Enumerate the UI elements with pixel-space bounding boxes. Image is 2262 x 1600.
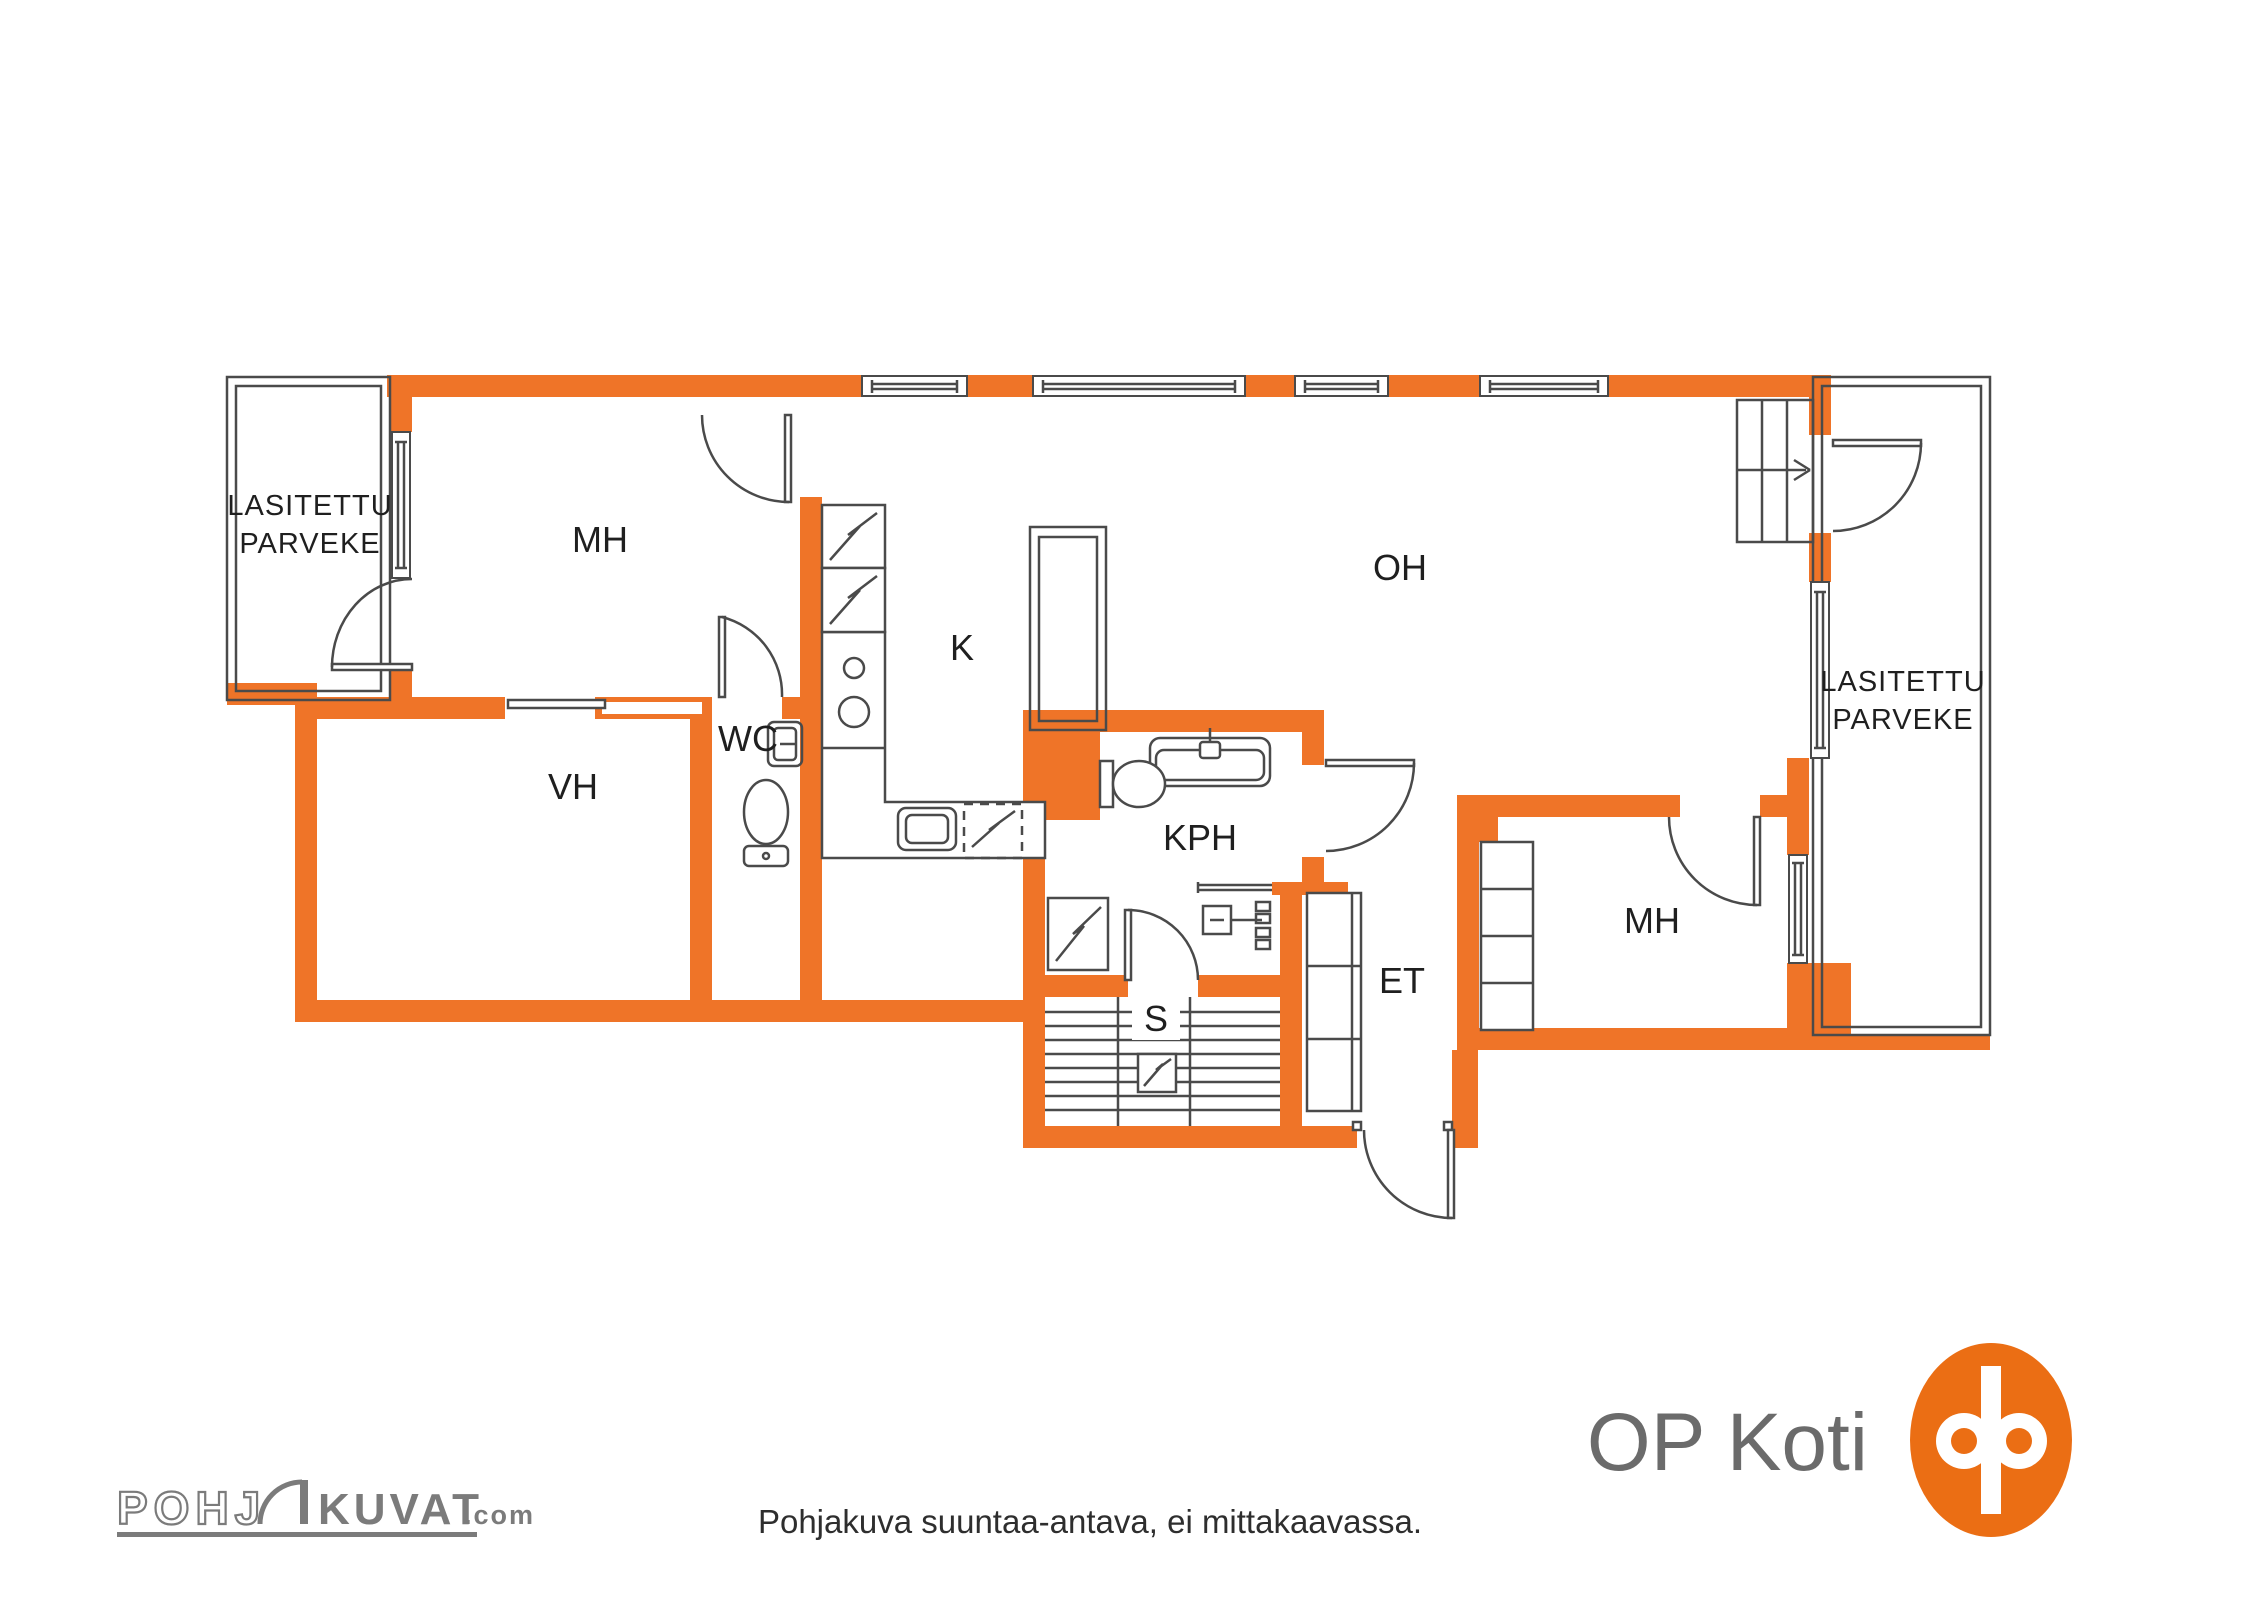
window-icon (862, 376, 967, 396)
toilet-icon (1100, 761, 1165, 807)
sliding-door-icon (508, 700, 702, 714)
window-icon (392, 432, 410, 578)
watermark-underline (117, 1532, 477, 1537)
room-label-s: S (1144, 998, 1168, 1039)
op-koti-logo: OP Koti (1587, 1343, 2072, 1537)
window-icon (1480, 376, 1608, 396)
fridge-icon (822, 505, 885, 568)
room-label-balcony-left-1: LASITETTU (227, 490, 392, 522)
windows (392, 376, 1829, 963)
freezer-icon (822, 568, 885, 632)
door-swing-icon (1669, 817, 1760, 905)
room-label-k: K (950, 627, 974, 668)
wardrobe (1481, 842, 1533, 1030)
sauna-stove-icon (1138, 1054, 1176, 1092)
floor-plan-svg: LASITETTU PARVEKE MH VH WC K OH KPH S ET… (0, 0, 2262, 1600)
door-glyph-icon (260, 1480, 304, 1524)
room-label-balcony-right-1: LASITETTU (1820, 666, 1985, 698)
room-label-oh: OH (1373, 547, 1427, 588)
entry-door-icon (1353, 1122, 1454, 1218)
bathroom-sink-icon (1150, 728, 1270, 786)
room-label-balcony-left-2: PARVEKE (239, 528, 380, 560)
watermark-suffix: KUVAT (318, 1485, 483, 1534)
op-logo-icon (1910, 1343, 2072, 1537)
stairs-icon (1737, 400, 1813, 542)
room-label-vh: VH (548, 766, 598, 807)
entry-cabinet (1307, 893, 1361, 1111)
door-swing-icon (332, 579, 412, 670)
disclaimer-text: Pohjakuva suuntaa-antava, ei mittakaavas… (758, 1503, 1422, 1540)
room-label-mh-right: MH (1624, 900, 1680, 941)
floorplan-page: LASITETTU PARVEKE MH VH WC K OH KPH S ET… (0, 0, 2262, 1600)
doors (332, 415, 1921, 1218)
washing-machine-icon (1048, 898, 1108, 970)
pohjakuvat-watermark: POHJ KUVAT .com (117, 1480, 535, 1537)
room-label-balcony-right-2: PARVEKE (1832, 704, 1973, 736)
kitchen-island (1030, 527, 1106, 730)
door-swing-icon (719, 617, 782, 697)
window-icon (1033, 376, 1245, 396)
op-koti-text: OP Koti (1587, 1397, 1868, 1488)
window-icon (1295, 376, 1388, 396)
room-label-kph: KPH (1163, 817, 1237, 858)
watermark-domain: .com (464, 1500, 535, 1530)
shower-icon (1198, 882, 1272, 949)
room-label-wc: WC (718, 718, 778, 759)
window-icon (1789, 855, 1807, 963)
door-swing-icon (1833, 440, 1921, 531)
toilet-icon (744, 780, 788, 866)
door-swing-icon (1125, 910, 1198, 980)
door-swing-icon (702, 415, 791, 502)
watermark-prefix: POHJ (117, 1482, 266, 1534)
room-label-mh-top: MH (572, 519, 628, 560)
room-label-et: ET (1379, 960, 1425, 1001)
door-swing-icon (1326, 760, 1414, 851)
